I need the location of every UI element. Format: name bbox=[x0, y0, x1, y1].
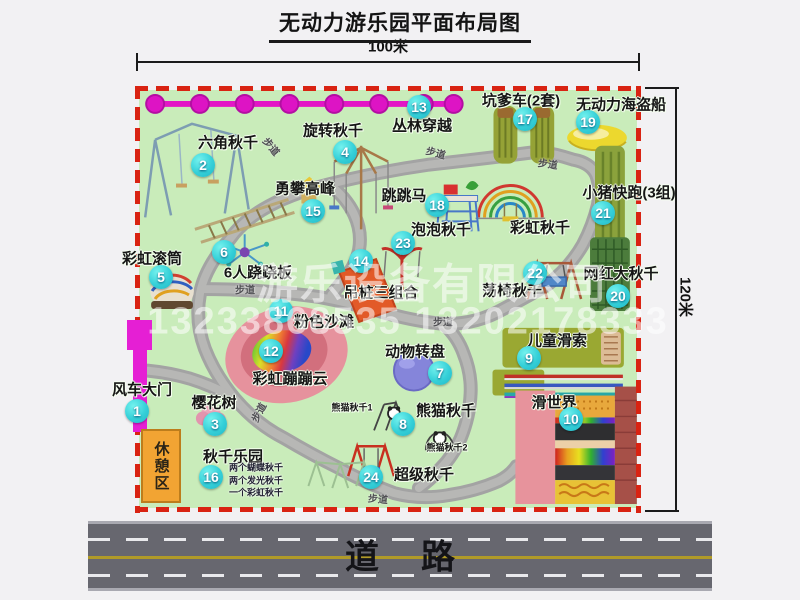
panda-swing-icon bbox=[374, 403, 454, 451]
dimension-tick-right-bottom bbox=[645, 510, 679, 512]
jungle-crossing-chain-icon bbox=[146, 95, 462, 113]
cherry-tree-icon bbox=[196, 404, 226, 433]
animal-turntable-icon bbox=[394, 351, 434, 391]
dimension-height-label: 120米 bbox=[676, 277, 697, 317]
park-border-left bbox=[135, 86, 140, 513]
jumping-horse-icon bbox=[437, 181, 479, 231]
dimension-tick-top-right bbox=[638, 53, 640, 71]
park-border-right bbox=[636, 86, 641, 513]
park-border-top bbox=[135, 86, 641, 91]
rest-area-box: 休憩区 bbox=[141, 429, 181, 503]
rainbow-swing-icon bbox=[476, 186, 546, 222]
watermark-phone: 13233868535 13202178333 bbox=[147, 301, 669, 344]
park-plan-screenshot: 无动力游乐园平面布局图 100米 120米 bbox=[0, 0, 800, 600]
dimension-line-top bbox=[137, 61, 640, 63]
hexagon-swing-icon bbox=[145, 124, 249, 218]
climbing-peak-icon bbox=[195, 177, 322, 243]
park-border-bottom bbox=[135, 507, 641, 512]
road: 道路 bbox=[88, 521, 712, 591]
page-title: 无动力游乐园平面布局图 bbox=[269, 7, 531, 43]
windmill-gate-pole-icon bbox=[133, 349, 147, 432]
road-label: 道路 bbox=[303, 530, 497, 579]
dimension-tick-right-top bbox=[645, 87, 679, 89]
dimension-tick-top-left bbox=[136, 53, 138, 71]
